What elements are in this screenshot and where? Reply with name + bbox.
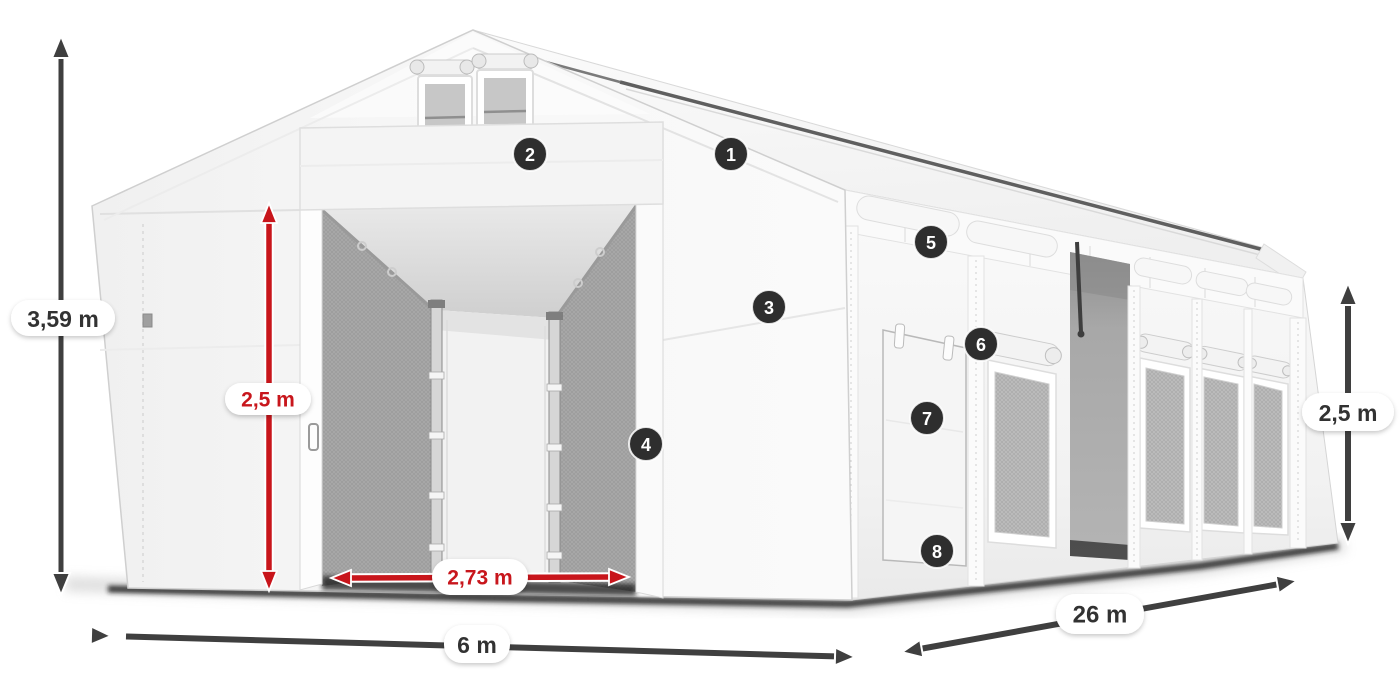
callout-badge-8[interactable]: 8 <box>920 534 954 568</box>
badge-number-4: 4 <box>641 435 651 455</box>
dim-value-inner-height: 2,5 m <box>241 389 295 412</box>
door-tab-1 <box>894 324 905 349</box>
callout-badge-2[interactable]: 2 <box>513 137 547 171</box>
tent-illustration-svg: 3,59 m 2,5 m 2,73 m 6 m <box>0 0 1400 700</box>
badge-number-3: 3 <box>764 298 774 318</box>
callout-badge-1[interactable]: 1 <box>714 137 748 171</box>
gable-vent-right <box>472 54 538 132</box>
badge-number-1: 1 <box>726 145 736 165</box>
badge-number-7: 7 <box>922 409 932 429</box>
badge-number-2: 2 <box>525 145 535 165</box>
dim-value-total-height: 3,59 m <box>27 306 99 332</box>
badge-number-5: 5 <box>926 233 936 253</box>
dim-value-door-width: 2,73 m <box>447 567 512 590</box>
dim-tent-width: 6 m <box>91 625 855 666</box>
personnel-door <box>883 324 966 566</box>
callout-badge-3[interactable]: 3 <box>752 290 786 324</box>
dim-value-side-height: 2,5 m <box>1319 400 1378 426</box>
dim-label-tent-length: 26 m <box>1056 594 1144 634</box>
doorway-interior <box>322 204 636 596</box>
front-doorway <box>300 122 663 598</box>
interior-pole-1 <box>428 300 445 576</box>
dim-value-tent-width: 6 m <box>457 632 497 658</box>
side-door-opening <box>1070 242 1130 560</box>
dim-total-height: 3,59 m <box>11 36 115 595</box>
badge-number-8: 8 <box>932 542 942 562</box>
door-post-right <box>636 200 663 598</box>
dim-label-total-height: 3,59 m <box>11 300 115 336</box>
badge-number-6: 6 <box>976 335 986 355</box>
callout-badge-5[interactable]: 5 <box>914 225 948 259</box>
dim-value-tent-length: 26 m <box>1073 602 1128 629</box>
callout-badge-4[interactable]: 4 <box>629 427 663 461</box>
dim-label-tent-width: 6 m <box>444 625 510 663</box>
callout-badge-6[interactable]: 6 <box>964 327 998 361</box>
vent-roller-right <box>472 54 538 69</box>
vent-roller-left <box>410 60 474 75</box>
dim-label-door-width: 2,73 m <box>432 559 528 595</box>
dim-label-inner-height: 2,5 m <box>225 383 311 415</box>
interior-passthrough <box>436 310 554 580</box>
dim-label-side-height: 2,5 m <box>1302 393 1394 431</box>
interior-pole-2 <box>546 312 563 582</box>
callout-badge-7[interactable]: 7 <box>910 401 944 435</box>
tent-diagram: 3,59 m 2,5 m 2,73 m 6 m <box>0 0 1400 700</box>
door-tab-2 <box>943 336 954 361</box>
